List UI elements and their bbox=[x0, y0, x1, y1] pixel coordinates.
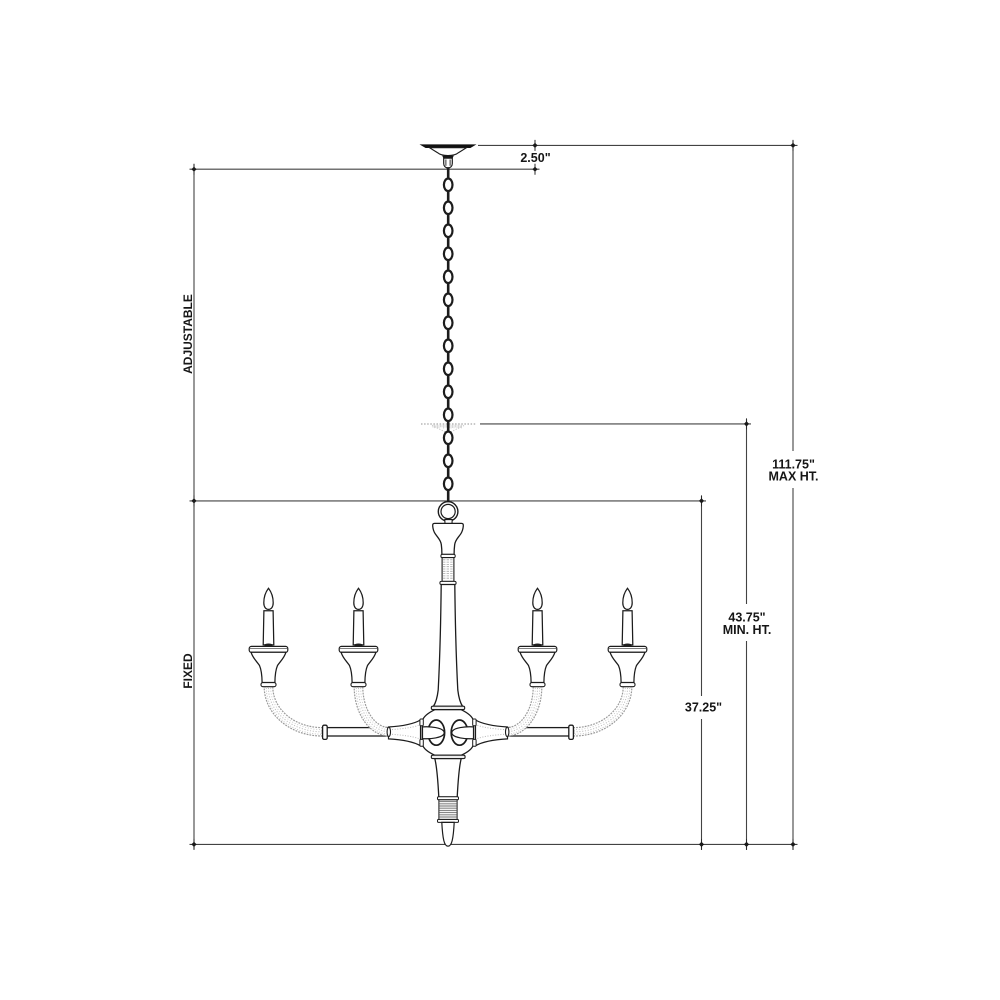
svg-text:FIXED: FIXED bbox=[181, 653, 195, 689]
svg-text:MIN. HT.: MIN. HT. bbox=[723, 623, 772, 637]
svg-text:2.50": 2.50" bbox=[520, 151, 550, 165]
svg-text:37.25": 37.25" bbox=[685, 701, 722, 715]
svg-text:ADJUSTABLE: ADJUSTABLE bbox=[181, 294, 195, 374]
svg-text:MAX HT.: MAX HT. bbox=[769, 470, 819, 484]
